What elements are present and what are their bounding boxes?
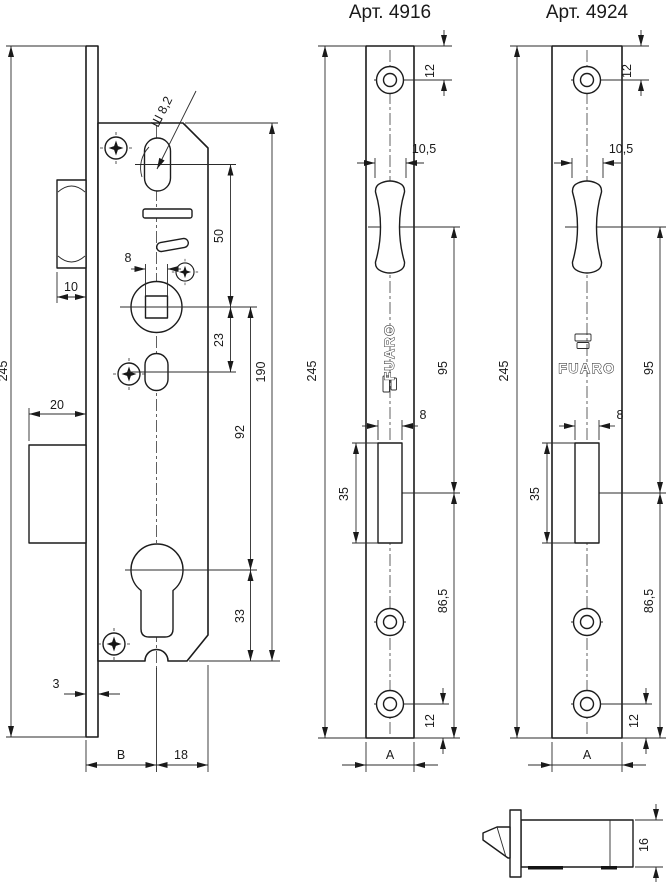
deadbolt [29, 445, 86, 543]
deadbolt-opening-4916 [378, 443, 402, 543]
dim-latch-to-deadbolt: 95 [436, 361, 450, 375]
brand-logo-4924: FUARO [558, 360, 615, 376]
dim-backset: B [117, 748, 125, 762]
dim-latch-to-deadbolt: 95 [642, 361, 656, 375]
screw-hole-icon [377, 67, 404, 94]
dim-deadbolt-to-bottom: 86,5 [436, 589, 450, 613]
dim-spindle-square: 8 [125, 251, 132, 265]
faceplate-4924-view: Арт. 4924 [497, 2, 666, 772]
dim-deadbolt-slot-height: 35 [528, 487, 542, 501]
faceplate-4916-view: Арт. 4916 [305, 2, 460, 772]
dim-plate-width: A [386, 748, 395, 762]
screw-hole-icon [377, 691, 404, 718]
dim-spindle-to-cylinder: 92 [233, 425, 247, 439]
dim-plate-width: A [583, 748, 592, 762]
technical-drawing: 245 10 20 3 B 18 8 Ш 8,2 50 23 92 33 190… [0, 0, 670, 886]
screw-hole-icon [574, 609, 601, 636]
dim-body-height: 190 [254, 362, 268, 383]
main-lock-view: 245 10 20 3 B 18 8 Ш 8,2 50 23 92 33 190 [0, 46, 280, 772]
latch-foot [528, 866, 563, 870]
screw-hole-icon [377, 609, 404, 636]
screw-hole-icon [574, 67, 601, 94]
dim-latch-slot-width: 10,5 [609, 142, 633, 156]
dim-deadbolt-protrusion: 20 [50, 398, 64, 412]
latch-bolt [57, 180, 86, 268]
faceplate-strip [86, 46, 98, 737]
dim-latch-protrusion: 10 [64, 280, 78, 294]
screw-hole-icon [574, 691, 601, 718]
dim-screw-offset: 12 [620, 64, 634, 78]
dim-plate-height: 245 [305, 361, 319, 382]
dim-latch-slot-width: 10,5 [412, 142, 436, 156]
latch-side-view: 16 [483, 804, 663, 882]
dim-latch-height: 16 [637, 838, 651, 852]
brand-logo-4916: FUARO [381, 323, 397, 380]
title-4924: Арт. 4924 [546, 2, 629, 23]
dim-deadbolt-slot-height: 35 [337, 487, 351, 501]
drawing-canvas: 245 10 20 3 B 18 8 Ш 8,2 50 23 92 33 190… [0, 0, 670, 886]
dim-body-depth: 18 [174, 748, 188, 762]
dim-plate-height: 245 [497, 361, 511, 382]
latch-opening-4916 [375, 181, 404, 273]
dim-bottom-screw-offset: 12 [423, 714, 437, 728]
title-4916: Арт. 4916 [349, 2, 431, 23]
dim-oval-to-spindle: 50 [212, 229, 226, 243]
horizontal-slot [143, 209, 192, 218]
latch-bevel [483, 827, 510, 858]
dim-overall-height: 245 [0, 361, 10, 382]
faceplate-side [510, 810, 521, 877]
dim-spindle-to-oval: 23 [212, 333, 226, 347]
latch-foot [601, 866, 617, 870]
dim-cylinder-to-bottom: 33 [233, 609, 247, 623]
latch-opening-4924 [572, 181, 601, 273]
dim-deadbolt-slot-width: 8 [420, 408, 427, 422]
deadbolt-opening-4924 [575, 443, 599, 543]
dim-bottom-screw-offset: 12 [627, 714, 641, 728]
latch-body-side [521, 820, 633, 867]
dim-faceplate-thickness: 3 [53, 677, 60, 691]
dim-screw-offset: 12 [423, 64, 437, 78]
dim-deadbolt-slot-width: 8 [617, 408, 624, 422]
dim-deadbolt-to-bottom: 86,5 [642, 589, 656, 613]
